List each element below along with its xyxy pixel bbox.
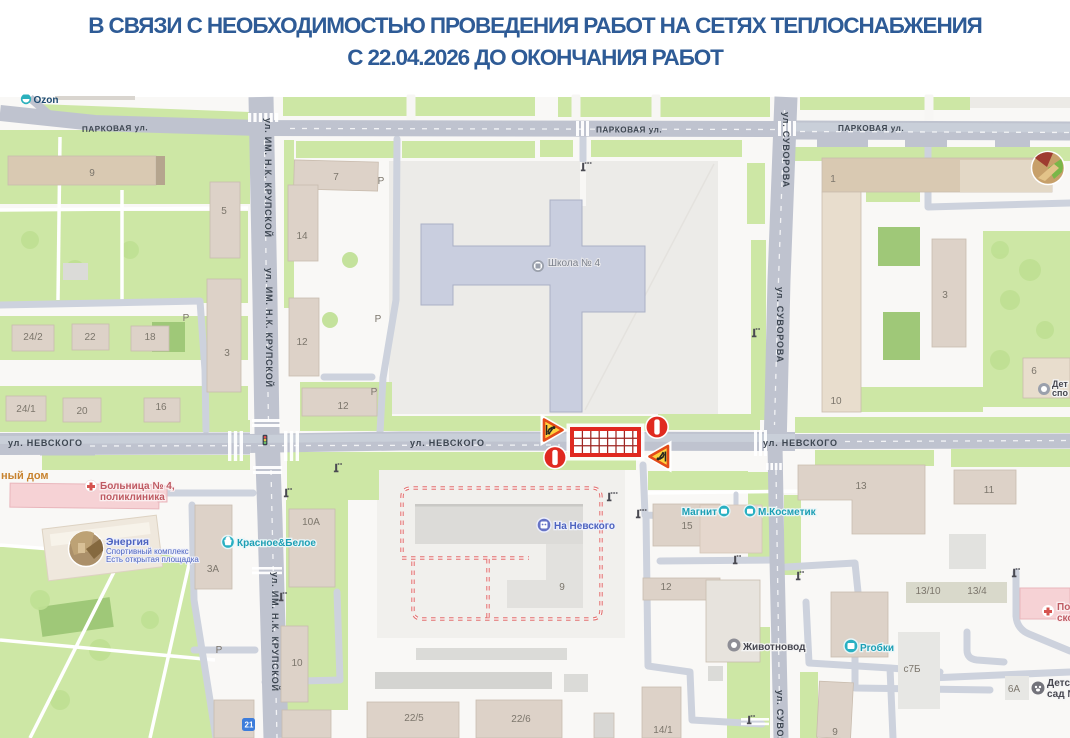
- svg-text:3А: 3А: [207, 564, 220, 575]
- svg-text:13/4: 13/4: [967, 586, 987, 597]
- svg-text:ул. СУВОРОВА: ул. СУВОРОВА: [781, 112, 791, 188]
- svg-text:24/1: 24/1: [16, 404, 36, 415]
- svg-text:9: 9: [832, 727, 838, 738]
- svg-text:3: 3: [224, 348, 230, 359]
- svg-text:ный дом: ный дом: [1, 470, 49, 482]
- svg-text:Пол: Пол: [1057, 602, 1070, 613]
- svg-text:Р: Р: [375, 314, 382, 325]
- svg-text:16: 16: [155, 402, 167, 413]
- svg-text:поликлиника: поликлиника: [100, 492, 165, 503]
- svg-text:ул. СУВОРОВА: ул. СУВОРОВА: [775, 690, 785, 738]
- svg-text:11: 11: [984, 485, 995, 496]
- svg-text:10: 10: [830, 396, 842, 407]
- svg-text:10А: 10А: [302, 517, 320, 528]
- svg-text:14: 14: [296, 231, 308, 242]
- svg-text:На Невского: На Невского: [554, 521, 615, 532]
- svg-text:6: 6: [1031, 366, 1037, 377]
- svg-text:14/1: 14/1: [653, 725, 673, 736]
- svg-text:ул. ИМ. Н.К. КРУПСКОЙ: ул. ИМ. Н.К. КРУПСКОЙ: [263, 118, 274, 238]
- svg-text:ско: ско: [1057, 613, 1070, 624]
- svg-text:ул. НЕВСКОГО: ул. НЕВСКОГО: [410, 438, 485, 448]
- svg-text:21: 21: [245, 721, 254, 730]
- svg-text:12: 12: [296, 337, 308, 348]
- svg-text:Р: Р: [183, 313, 190, 324]
- svg-text:ул. СУВОРОВА: ул. СУВОРОВА: [775, 287, 785, 363]
- svg-text:Больница № 4,: Больница № 4,: [100, 481, 175, 492]
- svg-text:Ozon: Ozon: [34, 95, 59, 106]
- svg-text:ул. НЕВСКОГО: ул. НЕВСКОГО: [763, 438, 838, 448]
- svg-text:22/6: 22/6: [511, 714, 531, 725]
- svg-text:6А: 6А: [1008, 684, 1021, 695]
- svg-text:9: 9: [89, 168, 95, 179]
- svg-text:10: 10: [291, 658, 303, 669]
- svg-text:Р: Р: [378, 176, 385, 187]
- svg-text:15: 15: [681, 521, 693, 532]
- svg-text:24/2: 24/2: [23, 332, 43, 343]
- svg-text:ул. НЕВСКОГО: ул. НЕВСКОГО: [8, 438, 83, 448]
- svg-text:20: 20: [76, 406, 88, 417]
- svg-text:22/5: 22/5: [404, 713, 424, 724]
- svg-text:спо: спо: [1052, 388, 1068, 398]
- svg-text:Есть открытая площадка: Есть открытая площадка: [106, 555, 199, 564]
- svg-text:Школа № 4: Школа № 4: [548, 258, 601, 269]
- svg-text:ПАРКОВАЯ ул.: ПАРКОВАЯ ул.: [596, 126, 662, 135]
- svg-text:ПАРКОВАЯ ул.: ПАРКОВАЯ ул.: [82, 123, 148, 134]
- svg-text:с7Б: с7Б: [903, 664, 921, 675]
- svg-text:Prобки: Prобки: [860, 642, 894, 654]
- svg-text:12: 12: [660, 582, 672, 593]
- svg-text:12: 12: [337, 401, 349, 412]
- svg-text:Р: Р: [371, 387, 378, 398]
- svg-text:ул. ИМ. Н.К. КРУПСКОЙ: ул. ИМ. Н.К. КРУПСКОЙ: [270, 572, 281, 692]
- svg-text:ул. ИМ. Н.К. КРУПСКОЙ: ул. ИМ. Н.К. КРУПСКОЙ: [264, 268, 275, 388]
- svg-text:22: 22: [84, 332, 96, 343]
- svg-text:13/10: 13/10: [915, 586, 940, 597]
- svg-text:Р: Р: [216, 645, 223, 656]
- svg-text:сад №5: сад №5: [1047, 689, 1070, 700]
- svg-text:М.Косметик: М.Косметик: [758, 507, 817, 518]
- svg-text:1: 1: [830, 174, 836, 185]
- svg-text:13: 13: [855, 481, 867, 492]
- svg-text:Животновод: Животновод: [742, 642, 806, 653]
- svg-text:3: 3: [942, 290, 948, 301]
- svg-text:ПАРКОВАЯ ул.: ПАРКОВАЯ ул.: [838, 124, 904, 133]
- svg-text:18: 18: [144, 332, 156, 343]
- svg-text:5: 5: [221, 206, 227, 217]
- svg-text:7: 7: [333, 172, 339, 183]
- svg-text:Детски: Детски: [1047, 678, 1070, 689]
- svg-text:Красное&Белое: Красное&Белое: [237, 538, 316, 549]
- svg-text:Магнит: Магнит: [682, 507, 717, 518]
- svg-text:9: 9: [559, 582, 565, 593]
